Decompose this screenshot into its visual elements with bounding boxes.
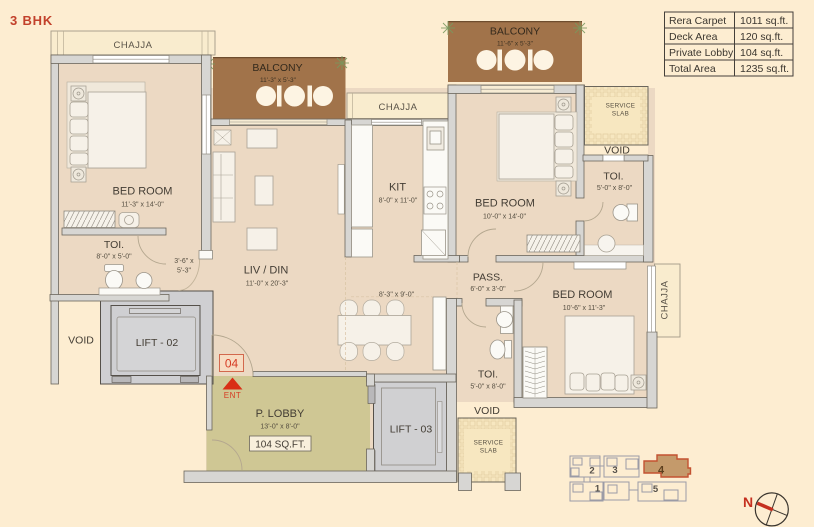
svg-text:SERVICE: SERVICE <box>606 103 636 110</box>
svg-text:8'-0" x 5'-0": 8'-0" x 5'-0" <box>96 254 132 261</box>
svg-text:ENT: ENT <box>224 391 242 400</box>
svg-text:VOID: VOID <box>604 145 630 157</box>
svg-text:2: 2 <box>589 466 594 477</box>
svg-text:5'-0" x 8'-0": 5'-0" x 8'-0" <box>470 384 506 391</box>
svg-text:Deck Area: Deck Area <box>669 31 718 43</box>
svg-text:LIV / DIN: LIV / DIN <box>244 265 289 277</box>
svg-text:120 sq.ft.: 120 sq.ft. <box>740 31 783 43</box>
svg-text:CHAJJA: CHAJJA <box>114 40 153 51</box>
svg-text:11'-0" x 20'-3": 11'-0" x 20'-3" <box>246 281 289 288</box>
svg-text:KIT: KIT <box>389 182 406 194</box>
svg-text:3 BHK: 3 BHK <box>10 13 53 28</box>
svg-text:CHAJJA: CHAJJA <box>379 102 418 113</box>
svg-text:3: 3 <box>612 465 617 476</box>
svg-text:6'-0" x 3'-0": 6'-0" x 3'-0" <box>470 286 506 293</box>
svg-text:TOI.: TOI. <box>603 171 623 183</box>
svg-text:5'-0" x 8'-0": 5'-0" x 8'-0" <box>597 185 633 192</box>
svg-text:SERVICE: SERVICE <box>474 440 504 447</box>
svg-text:4: 4 <box>658 465 665 477</box>
svg-text:13'-0" x 8'-0": 13'-0" x 8'-0" <box>260 424 300 431</box>
svg-text:N: N <box>743 494 753 510</box>
svg-text:TOI.: TOI. <box>104 239 124 251</box>
svg-text:LIFT - 02: LIFT - 02 <box>136 337 179 349</box>
svg-text:SLAB: SLAB <box>612 111 629 118</box>
svg-text:BED ROOM: BED ROOM <box>113 186 173 198</box>
svg-text:11'-6" x 5'-3": 11'-6" x 5'-3" <box>497 41 534 48</box>
svg-text:10'-6" x 11'-3": 10'-6" x 11'-3" <box>563 305 606 312</box>
svg-text:1: 1 <box>595 484 601 495</box>
svg-text:5'-3": 5'-3" <box>177 268 191 275</box>
svg-text:SLAB: SLAB <box>480 448 497 455</box>
svg-text:104 SQ.FT.: 104 SQ.FT. <box>255 440 306 451</box>
svg-text:VOID: VOID <box>474 405 500 417</box>
svg-text:BED ROOM: BED ROOM <box>475 198 535 210</box>
svg-text:BALCONY: BALCONY <box>252 62 302 74</box>
svg-text:VOID: VOID <box>68 335 94 347</box>
svg-text:BED ROOM: BED ROOM <box>553 289 613 301</box>
svg-text:11'-3" x 5'-3": 11'-3" x 5'-3" <box>260 77 297 84</box>
svg-text:04: 04 <box>225 357 239 371</box>
svg-text:Rera Carpet: Rera Carpet <box>669 15 726 27</box>
svg-text:BALCONY: BALCONY <box>490 26 540 38</box>
svg-text:1235 sq.ft.: 1235 sq.ft. <box>740 63 789 75</box>
svg-text:Private Lobby: Private Lobby <box>669 47 734 59</box>
svg-text:104 sq.ft.: 104 sq.ft. <box>740 47 783 59</box>
svg-text:10'-0" x 14'-0": 10'-0" x 14'-0" <box>483 214 527 221</box>
svg-text:1011 sq.ft.: 1011 sq.ft. <box>740 15 788 27</box>
svg-text:8'-3" x 9'-0": 8'-3" x 9'-0" <box>379 292 415 299</box>
svg-text:LIFT - 03: LIFT - 03 <box>390 424 433 436</box>
svg-text:5: 5 <box>653 484 659 495</box>
svg-text:3'-6" x: 3'-6" x <box>174 258 194 265</box>
svg-text:8'-0" x 11'-0": 8'-0" x 11'-0" <box>379 198 418 205</box>
svg-text:Total Area: Total Area <box>669 63 716 75</box>
svg-text:PASS.: PASS. <box>473 272 503 284</box>
svg-text:TOI.: TOI. <box>478 369 498 381</box>
svg-text:P. LOBBY: P. LOBBY <box>256 408 305 420</box>
svg-text:11'-3" x 14'-0": 11'-3" x 14'-0" <box>121 202 164 209</box>
svg-text:CHAJJA: CHAJJA <box>660 280 671 319</box>
